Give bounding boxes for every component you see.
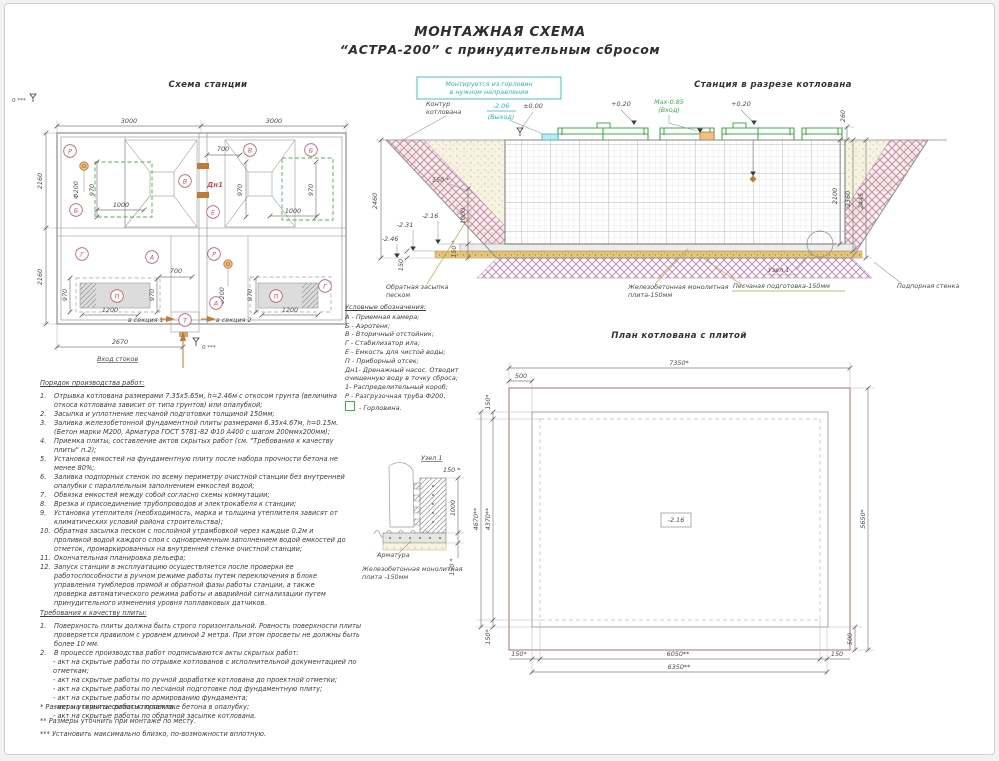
dim-970: 970: [246, 289, 254, 301]
dim-3000-left: 3000: [121, 117, 137, 125]
work-item: 6.Заливка подпорных стенок по всему пери…: [40, 473, 346, 491]
work-item: 2.Засыпка и уплотнение песчаной подготов…: [40, 410, 346, 419]
footnote: *** Установить максимально близко, по-во…: [40, 728, 370, 742]
footnotes-block: * Размеры уточнить согласно проекта. ** …: [40, 701, 370, 742]
svg-text:Б: Б: [309, 147, 313, 154]
label-slab-line2: плита-150мм: [628, 291, 672, 299]
quality-act: - акт на скрытые работы по ручной дорабо…: [53, 676, 370, 685]
cross-section-drawing: Монтируется из горловин в нужном направл…: [371, 77, 959, 299]
level-zero-inlet: 0 ***: [202, 345, 216, 351]
dim-1200: 1200: [102, 306, 118, 314]
elev-max-note: (Вход): [658, 106, 679, 114]
svg-text:П: П: [274, 293, 279, 300]
work-item: 3.Заливка железобетонной фундаментной пл…: [40, 419, 346, 437]
manhole-legend-icon: [345, 401, 355, 411]
dim-150-bottom-left: 150*: [484, 629, 492, 644]
legend-item: Р - Разгрузочная труба Ф200,: [345, 392, 497, 401]
pit-plan-title: План котлована с плитой: [569, 331, 789, 341]
drawing-title: МОНТАЖНАЯ СХЕМА “АСТРА-200” с принудител…: [250, 24, 750, 58]
elev-231: -2.31: [397, 221, 414, 229]
elev-zero: ±0.00: [523, 102, 543, 110]
pit-plan-drawing: -2.16 7350* 500 4670** 150* 4370** 150* …: [472, 359, 874, 675]
elev-246: -2.46: [382, 235, 399, 243]
label-circle-V: В: [244, 144, 257, 157]
station-plan-drawing: 3000 3000 2160 2160 0 *** 970 1000 Ф200 …: [12, 94, 348, 368]
dim-500-top: 500: [515, 372, 527, 380]
label-circle-G: Г: [76, 248, 89, 261]
elev-outlet: -2.06: [493, 102, 510, 110]
svg-text:В: В: [248, 147, 252, 154]
svg-text:Г: Г: [80, 251, 84, 258]
elev-max: Мах-0.85: [654, 98, 684, 106]
svg-text:А: А: [149, 254, 154, 261]
legend-title: Условные обозначения:: [345, 303, 497, 312]
quality-act: - акт на скрытые работы по отрывке котло…: [53, 658, 370, 676]
label-backfill-line2: песком: [386, 291, 410, 299]
legend-item-gorlovina: - Горловина.: [345, 401, 497, 413]
svg-text:В: В: [183, 178, 187, 185]
dim-4370: 4370**: [484, 508, 492, 531]
label-dn1: Дн1: [206, 181, 223, 189]
label-section-2: в секция 2: [216, 316, 252, 324]
dim-2670: 2670: [112, 338, 128, 346]
label-circle-P: П: [270, 290, 283, 303]
note-mounting-line1: Монтируется из горловин: [445, 80, 532, 88]
dim-2160-top: 2160: [36, 173, 44, 189]
work-item: 8.Врезка и присоединение трубопроводов и…: [40, 500, 346, 509]
level-zero-top: 0 ***: [12, 98, 26, 104]
dim-2445: 2445: [857, 193, 865, 209]
drawing-title-line2: “АСТРА-200” с принудительным сбросом: [250, 41, 750, 58]
callout-node1: Узел 1: [768, 266, 789, 274]
legend-item: П - Приборный отсек;: [345, 357, 497, 366]
svg-text:П: П: [115, 293, 120, 300]
legend-block: Условные обозначения: А - Приемная камер…: [345, 303, 497, 413]
dim-500-right: 500: [846, 633, 854, 645]
dim-phi200: Ф200: [72, 181, 80, 199]
svg-text:Р: Р: [68, 148, 72, 155]
dim-970: 970: [236, 184, 244, 196]
node-label-rebar: Арматура: [376, 551, 410, 559]
dim-2360: 2360: [844, 191, 852, 207]
quality-act: - акт на скрытые работы по песчаной подг…: [53, 685, 370, 694]
quality-title: Требования к качеству плиты:: [40, 609, 370, 618]
dim-6050: 6050**: [667, 650, 690, 658]
dim-700: 700: [217, 145, 229, 153]
cross-section-title: Станция в разрезе котлована: [648, 80, 898, 90]
dim-970: 970: [148, 289, 156, 301]
dim-4670: 4670**: [472, 508, 480, 531]
svg-text:Г: Г: [323, 283, 327, 290]
svg-text:Р: Р: [212, 251, 216, 258]
legend-item: А - Приемная камера;: [345, 313, 497, 322]
dim-5650: 5650*: [859, 509, 867, 528]
label-contour-line2: котлована: [426, 108, 461, 116]
label-circle-T: Т: [179, 314, 192, 327]
dim-3000-right: 3000: [266, 117, 282, 125]
dim-150-star: 150 *: [450, 240, 458, 257]
elev-outlet-note: (Выход): [488, 113, 515, 121]
label-circle-G: Г: [319, 280, 332, 293]
dim-150-star: 150 *: [432, 176, 449, 184]
work-order-title: Порядок производства работ:: [40, 379, 346, 388]
label-slab-line1: Железобетонная монолитная: [627, 283, 729, 291]
legend-item: Б - Аэротенк;: [345, 322, 497, 331]
dim-150-bottom2: 150: [831, 650, 843, 658]
node-title: Узел 1: [421, 454, 442, 462]
outlet-stub: [542, 134, 558, 140]
dim-700: 700: [170, 267, 182, 275]
label-circle-P: П: [111, 290, 124, 303]
node-dim-1000: 1000: [449, 500, 457, 516]
work-item: 11.Окончательная планировка рельефа;: [40, 554, 346, 563]
quality-item: 2.В процессе производства работ подписыв…: [40, 649, 370, 658]
label-inlet: Вход стоков: [97, 355, 138, 363]
legend-item: Г - Стабилизатор ила;: [345, 339, 497, 348]
footnote: * Размеры уточнить согласно проекта.: [40, 701, 370, 715]
svg-text:Е: Е: [211, 209, 215, 216]
dim-1200: 1200: [282, 306, 298, 314]
inlet-stub: [700, 132, 714, 140]
dim-970: 970: [307, 184, 315, 196]
station-plan-title: Схема станции: [128, 80, 288, 90]
dim-260: 260: [839, 110, 847, 122]
node-dim-150-top: 150 *: [443, 466, 460, 474]
work-item: 1.Отрывка котлована размерами 7.35х5.65м…: [40, 392, 346, 410]
label-circle-B: Б: [70, 204, 83, 217]
dim-970: 970: [61, 289, 69, 301]
label-circle-A: А: [210, 297, 223, 310]
legend-item: Е - Емкость для чистой воды;: [345, 348, 497, 357]
legend-item: Дн1- Дренажный насос. Отводит очищенную …: [345, 366, 497, 384]
elev-plus020-left: +0.20: [611, 100, 631, 108]
node-detail-drawing: Узел 1 150 * 1000 150 * Арматура Железоб…: [361, 454, 464, 581]
node-label-slab2: плита -150мм: [362, 573, 408, 581]
dim-2100: 2100: [831, 188, 839, 204]
dim-2460: 2460: [371, 193, 379, 209]
label-section-1: в секция 1: [128, 316, 164, 324]
footnote: ** Размеры уточнить при монтаже по месту…: [40, 715, 370, 729]
legend-item: В - Вторичный отстойник;: [345, 330, 497, 339]
svg-text:А: А: [213, 300, 218, 307]
work-order-block: Порядок производства работ: 1.Отрывка ко…: [40, 379, 346, 608]
label-contour-line1: Контур: [426, 100, 450, 108]
note-mounting-line2: в нужном направлении: [450, 88, 529, 96]
dim-150-bottom1: 150*: [511, 650, 526, 658]
legend-item: 1- Распределительный короб;: [345, 383, 497, 392]
svg-text:Б: Б: [74, 207, 78, 214]
label-circle-A: А: [146, 251, 159, 264]
work-item: 4.Приемка плиты, составление актов скрыт…: [40, 437, 346, 455]
work-item: 10.Обратная засыпка песком с послойной у…: [40, 527, 346, 554]
dim-150-sand: 150: [397, 259, 405, 271]
work-item: 7.Обвязка емкостей между собой согласно …: [40, 491, 346, 500]
label-circle-E: Е: [207, 206, 220, 219]
label-backfill-line1: Обратная засыпка: [386, 283, 449, 291]
legend-gorlovina-label: - Горловина.: [359, 404, 402, 412]
elev-216: -2.16: [422, 212, 439, 220]
dim-2160-bottom: 2160: [36, 269, 44, 285]
node-label-slab1: Железобетонная монолитная: [361, 565, 463, 573]
dim-7350: 7350*: [669, 359, 688, 367]
label-circle-B: Б: [305, 144, 318, 157]
drawing-title-line1: МОНТАЖНАЯ СХЕМА: [250, 24, 750, 41]
label-circle-R: Р: [208, 248, 221, 261]
label-sand-prep: Песчаная подготовка-150мм: [733, 282, 830, 290]
dim-6350: 6350**: [668, 663, 691, 671]
dim-1000: 1000: [285, 207, 301, 215]
label-circle-R: Р: [64, 145, 77, 158]
dim-1000: 1000: [113, 201, 129, 209]
work-item: 5.Установка емкостей на фундаментную пли…: [40, 455, 346, 473]
quality-item: 1.Поверхность плиты должна быть строго г…: [40, 622, 370, 649]
plan-elev-216: -2.16: [668, 516, 685, 524]
label-retaining-wall: Подпорная стенка: [897, 282, 959, 290]
work-item: 12.Запуск станции в эксплуатацию осущест…: [40, 563, 346, 608]
elev-plus020-right: +0.20: [731, 100, 751, 108]
work-item: 9.Установка утеплителя (необходимость, м…: [40, 509, 346, 527]
dim-970: 970: [88, 184, 96, 196]
label-circle-V: В: [179, 175, 192, 188]
